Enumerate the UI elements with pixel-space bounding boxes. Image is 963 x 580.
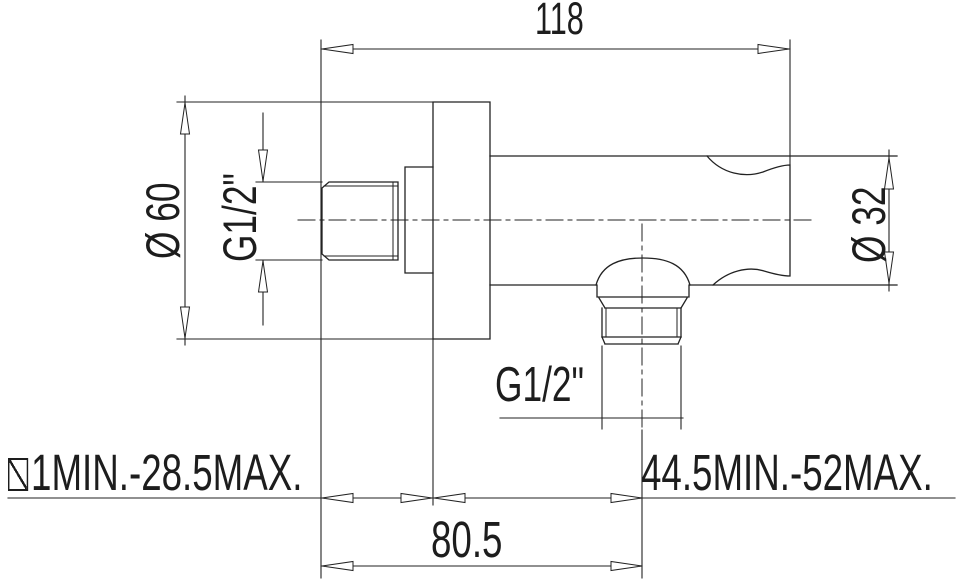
dim-label-outlet-thread: G1/2" xyxy=(495,361,584,410)
part-outline xyxy=(322,102,897,344)
dim-label-overall-length: 118 xyxy=(535,0,584,41)
dim-label-flange-to-outlet-range: 44.5MIN.-52MAX. xyxy=(641,447,933,498)
dim-label-body-diameter: Ø 32 xyxy=(845,187,892,263)
wall-depth-range-text: 1MIN.-28.5MAX. xyxy=(31,444,302,501)
technical-drawing-canvas: 118 Ø 60 G1/2" Ø 32 G1/2" 1MIN.-28.5MAX.… xyxy=(0,0,963,580)
dim-label-thread-to-outlet: 80.5 xyxy=(431,514,502,565)
dim-label-inlet-thread: G1/2" xyxy=(216,173,263,262)
dim-label-flange-diameter: Ø 60 xyxy=(139,183,186,259)
slashed-box-icon xyxy=(8,458,28,491)
dim-label-wall-depth-range: 1MIN.-28.5MAX. xyxy=(8,447,302,498)
